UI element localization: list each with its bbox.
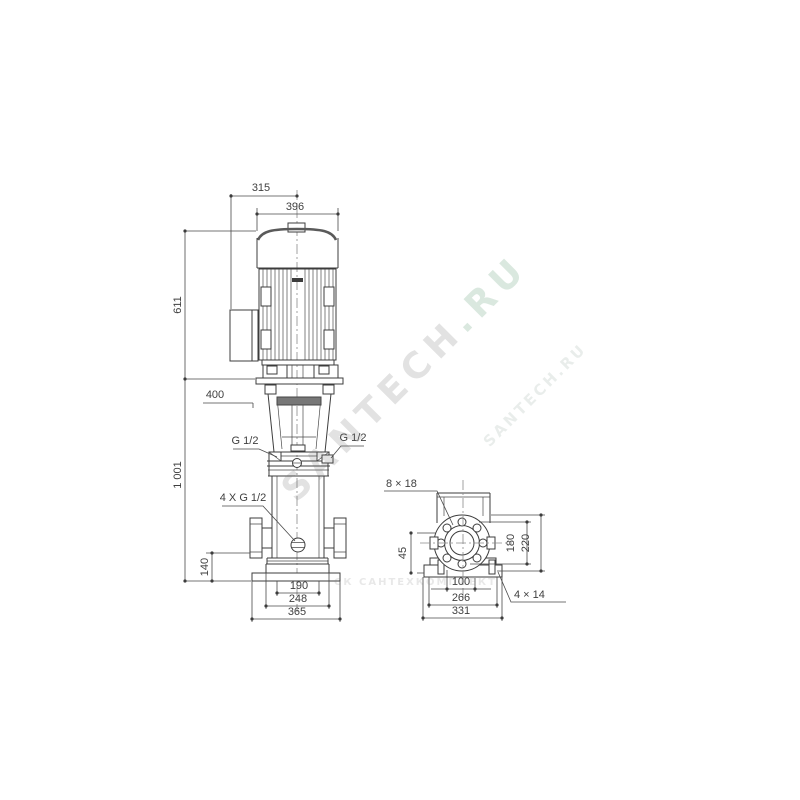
dim-label-180: 180	[505, 534, 517, 552]
front-view: 315 396 611 1 001 400	[172, 182, 366, 622]
coupling-guard-band	[277, 397, 321, 405]
right-flange	[324, 518, 346, 558]
pump-dimensional-drawing: 315 396 611 1 001 400	[0, 0, 800, 800]
dim-label-611: 611	[172, 296, 184, 314]
dim-label-400: 400	[206, 389, 224, 401]
drawing-canvas: 315 396 611 1 001 400	[0, 0, 800, 800]
left-flange	[250, 518, 272, 558]
port-label-g12-right: G 1/2	[340, 432, 367, 444]
dim-label-396: 396	[286, 201, 304, 213]
dim-label-45: 45	[397, 547, 409, 559]
terminal-box	[230, 310, 258, 361]
pump-head-plate	[256, 378, 343, 384]
label-8x18: 8 × 18	[386, 478, 417, 490]
dim-label-100: 100	[452, 576, 470, 588]
motor-feet	[262, 360, 338, 378]
dim-label-190: 190	[290, 580, 308, 592]
dim-label-220: 220	[520, 534, 532, 552]
pump-head	[267, 452, 333, 476]
dim-label-266: 266	[452, 592, 470, 604]
motor-stool	[265, 384, 334, 452]
port-label-4xg12: 4 X G 1/2	[220, 492, 266, 504]
motor-finned-body	[259, 269, 336, 360]
dim-label-140: 140	[199, 558, 211, 576]
drain-plug	[291, 538, 305, 552]
label-4x14: 4 × 14	[514, 589, 545, 601]
dim-label-1001: 1 001	[172, 461, 184, 489]
port-label-g12-left: G 1/2	[232, 435, 259, 447]
dim-label-315: 315	[252, 182, 270, 194]
motor-fan-cover	[257, 223, 338, 268]
pump-base	[252, 558, 340, 581]
dim-label-331: 331	[452, 605, 470, 617]
dim-label-365: 365	[288, 606, 306, 618]
side-view: 8 × 18 45 180 220	[384, 478, 566, 621]
dim-label-248: 248	[289, 593, 307, 605]
